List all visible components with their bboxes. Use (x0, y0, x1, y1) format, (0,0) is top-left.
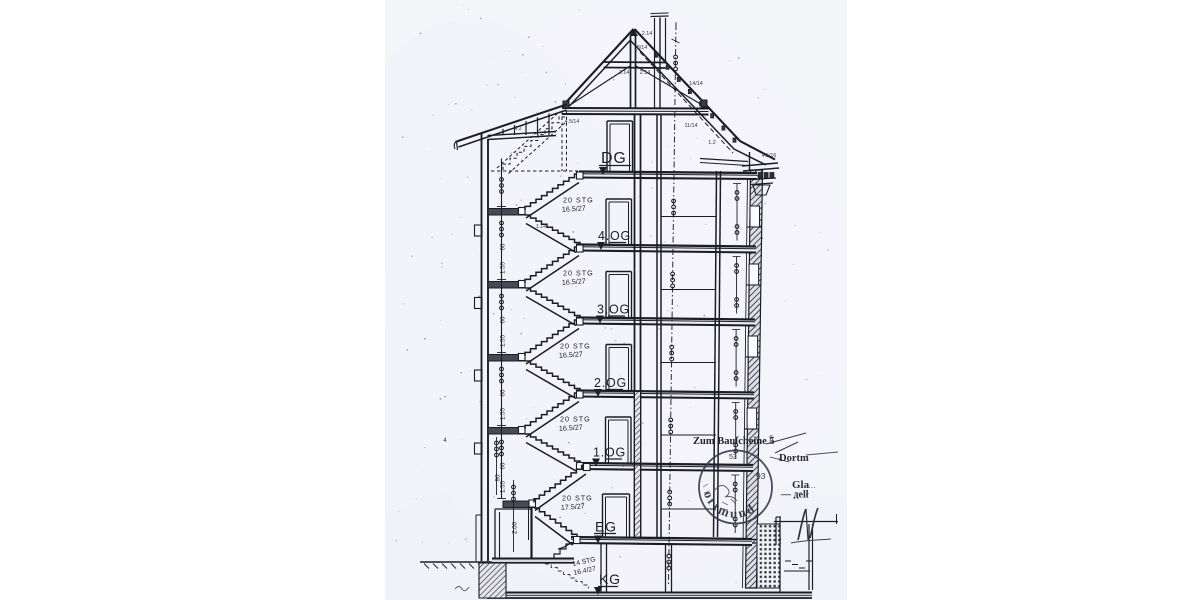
svg-text:2.14: 2.14 (642, 31, 653, 37)
svg-text:2.14: 2.14 (640, 70, 651, 76)
svg-text:53: 53 (729, 454, 737, 461)
svg-text:4.OG: 4.OG (598, 229, 631, 243)
svg-text:1.55: 1.55 (500, 334, 507, 347)
svg-text:1.55: 1.55 (500, 261, 507, 274)
svg-text:60: 60 (500, 389, 507, 396)
svg-text:1.14: 1.14 (536, 224, 546, 230)
svg-text:5: 5 (769, 434, 774, 444)
svg-text:14/14: 14/14 (689, 81, 703, 87)
svg-text:…: … (808, 481, 816, 490)
svg-text:4.5/14: 4.5/14 (565, 119, 580, 125)
svg-text:3.OG: 3.OG (597, 303, 630, 317)
svg-text:EG: EG (595, 519, 617, 535)
svg-text:DG: DG (601, 150, 627, 167)
svg-text:11/14: 11/14 (684, 123, 697, 129)
svg-text:2.OG: 2.OG (594, 376, 627, 390)
svg-text:93: 93 (756, 471, 766, 481)
svg-text:2.00: 2.00 (512, 521, 519, 534)
svg-text:16.5/27: 16.5/27 (562, 203, 587, 214)
svg-text:1.55: 1.55 (500, 407, 507, 420)
svg-text:3.14: 3.14 (619, 70, 630, 76)
svg-text:KG: KG (599, 571, 621, 587)
svg-text:Zum Bauſcheine 5: Zum Bauſcheine 5 (693, 436, 775, 447)
svg-text:4.5/16: 4.5/16 (762, 153, 777, 159)
svg-text:60: 60 (500, 462, 507, 469)
svg-text:16.5/27: 16.5/27 (562, 276, 587, 287)
svg-text:16.5/27: 16.5/27 (559, 422, 584, 433)
svg-text:Dortm: Dortm (779, 453, 809, 464)
svg-text:4.2: 4.2 (514, 126, 521, 132)
svg-text:16.5/27: 16.5/27 (559, 349, 584, 360)
svg-text:1.OG: 1.OG (593, 446, 626, 460)
svg-text:17.5/27: 17.5/27 (561, 501, 586, 512)
svg-text:8/14: 8/14 (637, 45, 648, 51)
svg-text:60: 60 (500, 243, 507, 250)
svg-text:1.2: 1.2 (708, 140, 716, 146)
svg-text:90: 90 (495, 474, 502, 481)
svg-text:— дelł: — дelł (780, 490, 809, 501)
svg-text:60: 60 (500, 316, 507, 323)
